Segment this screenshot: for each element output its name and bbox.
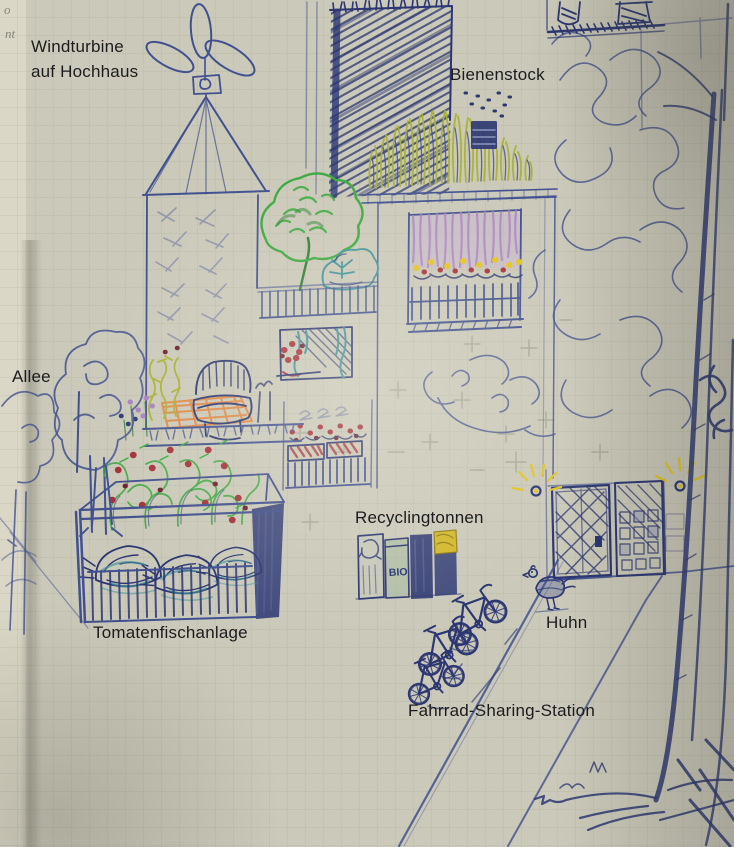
lamp-glow bbox=[678, 484, 682, 488]
label-bienenstock: Bienenstock bbox=[450, 62, 545, 87]
margin-fragment: nt bbox=[5, 26, 16, 41]
lamp-glow bbox=[534, 489, 538, 493]
door-handle bbox=[595, 536, 602, 547]
tower-left-edge bbox=[334, 12, 337, 195]
grid-lines bbox=[0, 0, 734, 847]
page-fold-shadow bbox=[20, 240, 42, 847]
recycling-bins: BIO bbox=[356, 530, 461, 599]
graph-paper bbox=[0, 0, 734, 847]
bin-paper-fill bbox=[358, 534, 384, 599]
label-recyclingtonnen: Recyclingtonnen bbox=[355, 505, 484, 530]
label-fahrrad-sharing-station: Fahrrad-Sharing-Station bbox=[408, 698, 595, 723]
chicken-eye bbox=[531, 571, 533, 573]
beehive-box bbox=[471, 121, 497, 149]
wall-edge bbox=[546, 470, 547, 578]
label-text: Windturbine bbox=[31, 34, 138, 59]
sketch-photo: o nt bbox=[0, 0, 734, 847]
bin-residual bbox=[410, 534, 433, 599]
label-allee: Allee bbox=[12, 364, 51, 389]
margin-fragment: o bbox=[4, 2, 11, 17]
label-text: auf Hochhaus bbox=[31, 59, 138, 84]
label-huhn: Huhn bbox=[546, 610, 587, 635]
label-tomatenfischanlage: Tomatenfischanlage bbox=[93, 620, 248, 645]
sketch-canvas: o nt bbox=[0, 0, 734, 847]
label-windturbine: Windturbine auf Hochhaus bbox=[31, 34, 138, 84]
bio-bin-label: BIO bbox=[389, 566, 408, 579]
